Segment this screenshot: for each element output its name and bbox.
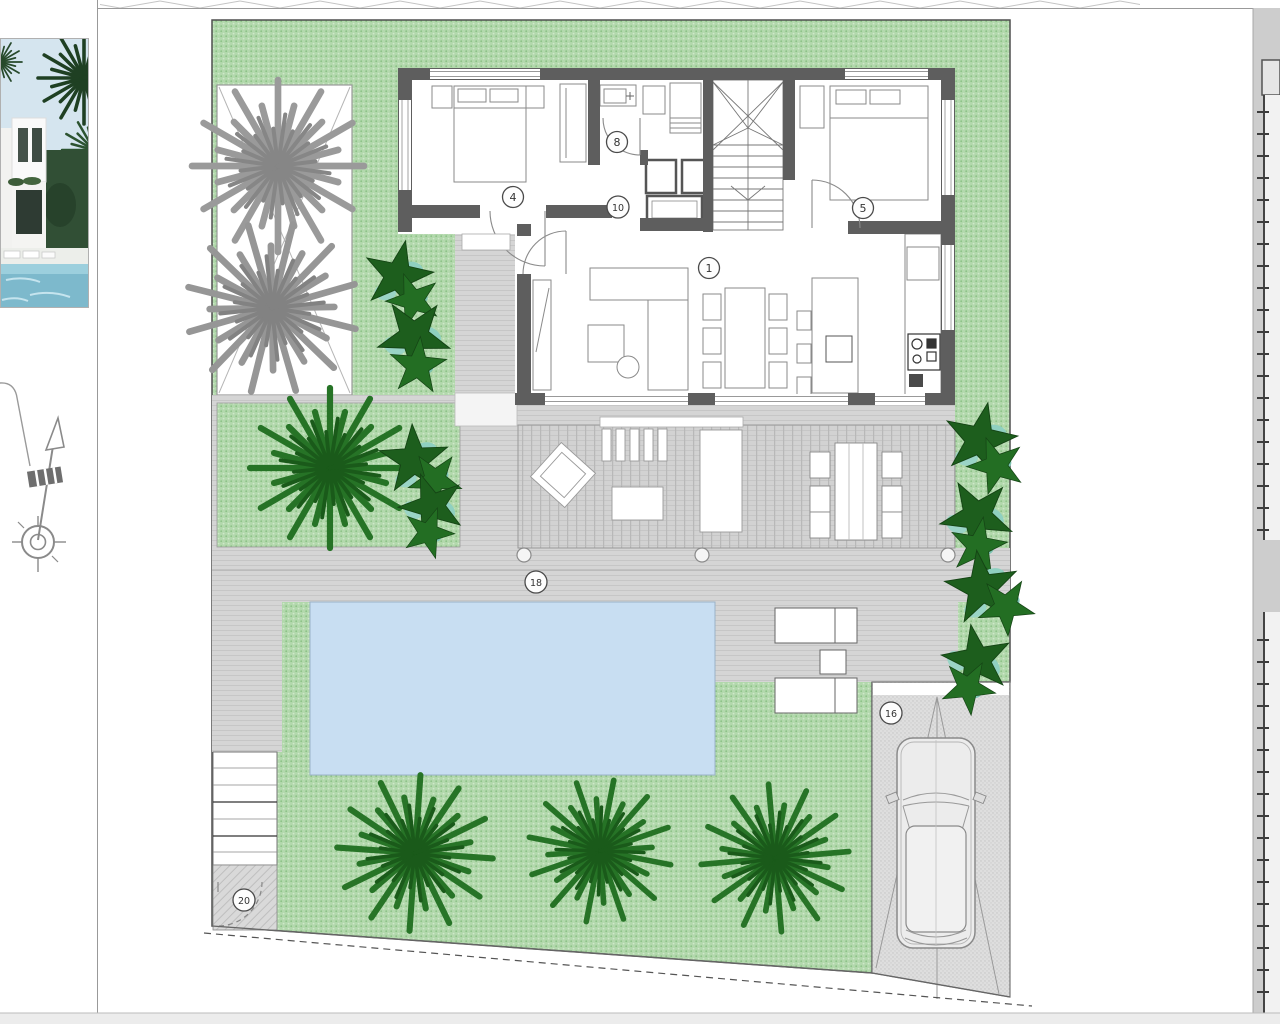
window: [399, 100, 411, 190]
svg-text:1: 1: [706, 262, 713, 275]
clipped-shape-left: [0, 383, 30, 466]
label-living-kitchen: 1: [699, 258, 720, 279]
bottom-margin: [0, 1013, 1280, 1024]
door-mat: [462, 234, 510, 250]
lounger-side-table: [820, 650, 846, 674]
nightstand: [524, 86, 544, 108]
adjacent-drawing-band: [1253, 8, 1280, 1013]
svg-text:4: 4: [510, 191, 517, 204]
porch-slab: [455, 393, 517, 426]
shower: [643, 86, 665, 114]
parking-area: [872, 682, 1010, 999]
villa-photo-thumbnail: [0, 32, 130, 308]
outdoor-dining-set: [810, 443, 902, 540]
side-path: [212, 602, 282, 752]
side-table: [617, 356, 639, 378]
label-hallway: 10: [607, 196, 629, 218]
outdoor-coffee-table: [612, 487, 663, 520]
pergola-beam: [600, 417, 743, 427]
deck-terrace: [517, 417, 955, 562]
kitchen-sink: [907, 247, 939, 280]
floor-plan-svg: 1 4 5 8 10 16: [0, 0, 1280, 1024]
outdoor-sofa: [700, 430, 742, 532]
utility-cabinet: [670, 83, 701, 133]
wardrobe: [560, 84, 586, 162]
nightstand: [432, 86, 452, 108]
svg-text:8: 8: [614, 136, 621, 149]
stove: [908, 334, 940, 370]
sliding-glass-door: [715, 394, 848, 404]
sliding-glass-door: [875, 394, 925, 404]
svg-text:20: 20: [238, 896, 250, 907]
window: [845, 69, 928, 79]
label-parking: 16: [880, 702, 902, 724]
clipped-drawing-above: [100, 0, 1140, 9]
sofa-chaise: [648, 300, 688, 390]
svg-text:18: 18: [530, 578, 542, 589]
car: [886, 738, 986, 948]
window: [942, 245, 954, 330]
dining-table: [725, 288, 765, 388]
window: [430, 69, 540, 79]
sofa: [590, 268, 688, 300]
drawing-page: 1 4 5 8 10 16: [0, 0, 1280, 1024]
tv-unit: [533, 280, 551, 390]
north-arrow-icon: [0, 383, 66, 572]
swimming-pool: [310, 602, 715, 775]
ottoman: [588, 325, 624, 362]
staircase: [713, 80, 783, 230]
label-terrace: 18: [525, 571, 547, 593]
wardrobe-b: [800, 86, 824, 128]
label-bedroom-a: 4: [503, 187, 524, 208]
svg-text:5: 5: [860, 202, 867, 215]
sliding-glass-door: [545, 394, 688, 404]
site-plan: 1 4 5 8 10 16: [168, 20, 1050, 1006]
window: [942, 100, 954, 195]
label-bedroom-b: 5: [853, 198, 874, 219]
svg-text:16: 16: [885, 709, 897, 720]
label-bathroom: 8: [607, 132, 628, 153]
label-entrance-steps: 20: [233, 889, 255, 911]
svg-text:10: 10: [612, 203, 624, 214]
compass-hatch-band: [27, 466, 63, 487]
